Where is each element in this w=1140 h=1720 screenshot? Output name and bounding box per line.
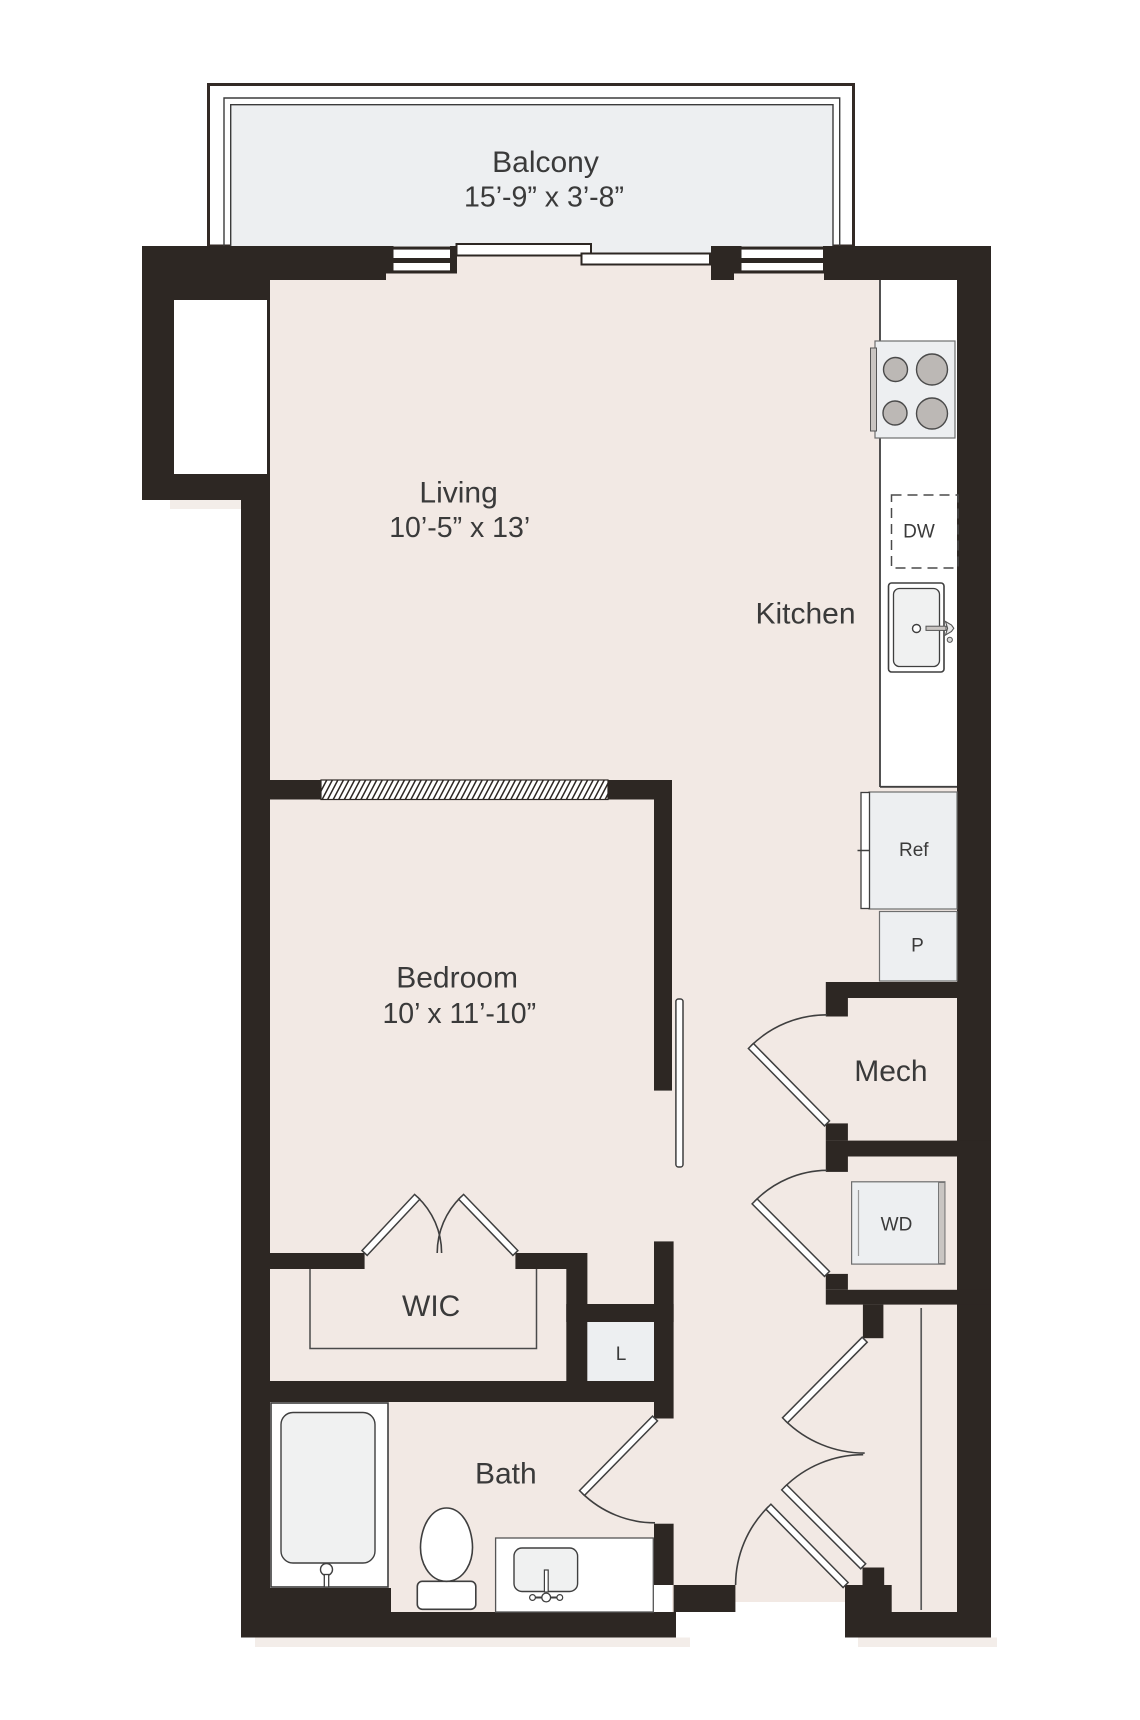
svg-text:Living: Living — [419, 477, 497, 510]
svg-text:P: P — [911, 936, 924, 957]
svg-text:L: L — [616, 1344, 627, 1365]
svg-text:Bedroom: Bedroom — [396, 962, 518, 995]
svg-text:Mech: Mech — [854, 1055, 927, 1088]
svg-text:10’ x 11’-10”: 10’ x 11’-10” — [382, 998, 536, 1030]
svg-text:Kitchen: Kitchen — [755, 598, 855, 631]
svg-text:DW: DW — [903, 522, 935, 543]
svg-text:Balcony: Balcony — [492, 146, 599, 179]
svg-text:10’-5” x 13’: 10’-5” x 13’ — [389, 512, 530, 544]
svg-text:Bath: Bath — [475, 1458, 537, 1491]
svg-text:WIC: WIC — [402, 1290, 460, 1323]
svg-text:WD: WD — [881, 1215, 913, 1236]
svg-text:Ref: Ref — [899, 840, 929, 861]
svg-text:15’-9” x 3’-8”: 15’-9” x 3’-8” — [464, 182, 624, 214]
